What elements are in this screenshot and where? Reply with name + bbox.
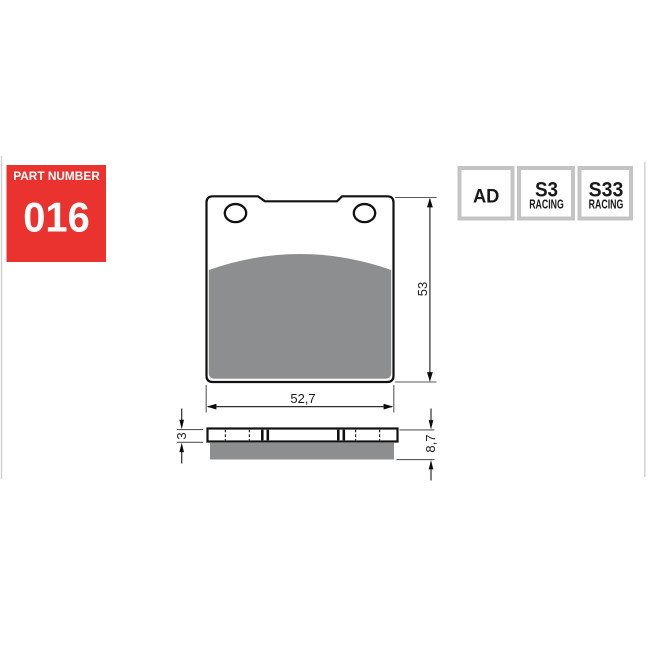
svg-text:016: 016 <box>23 194 90 241</box>
svg-text:RACING: RACING <box>529 197 564 211</box>
svg-text:53: 53 <box>415 282 430 296</box>
svg-text:RACING: RACING <box>589 197 624 211</box>
svg-text:PART NUMBER: PART NUMBER <box>13 170 100 183</box>
svg-text:3: 3 <box>174 432 189 439</box>
svg-text:AD: AD <box>473 186 500 208</box>
svg-text:8,7: 8,7 <box>423 435 438 453</box>
svg-text:52,7: 52,7 <box>290 391 315 406</box>
